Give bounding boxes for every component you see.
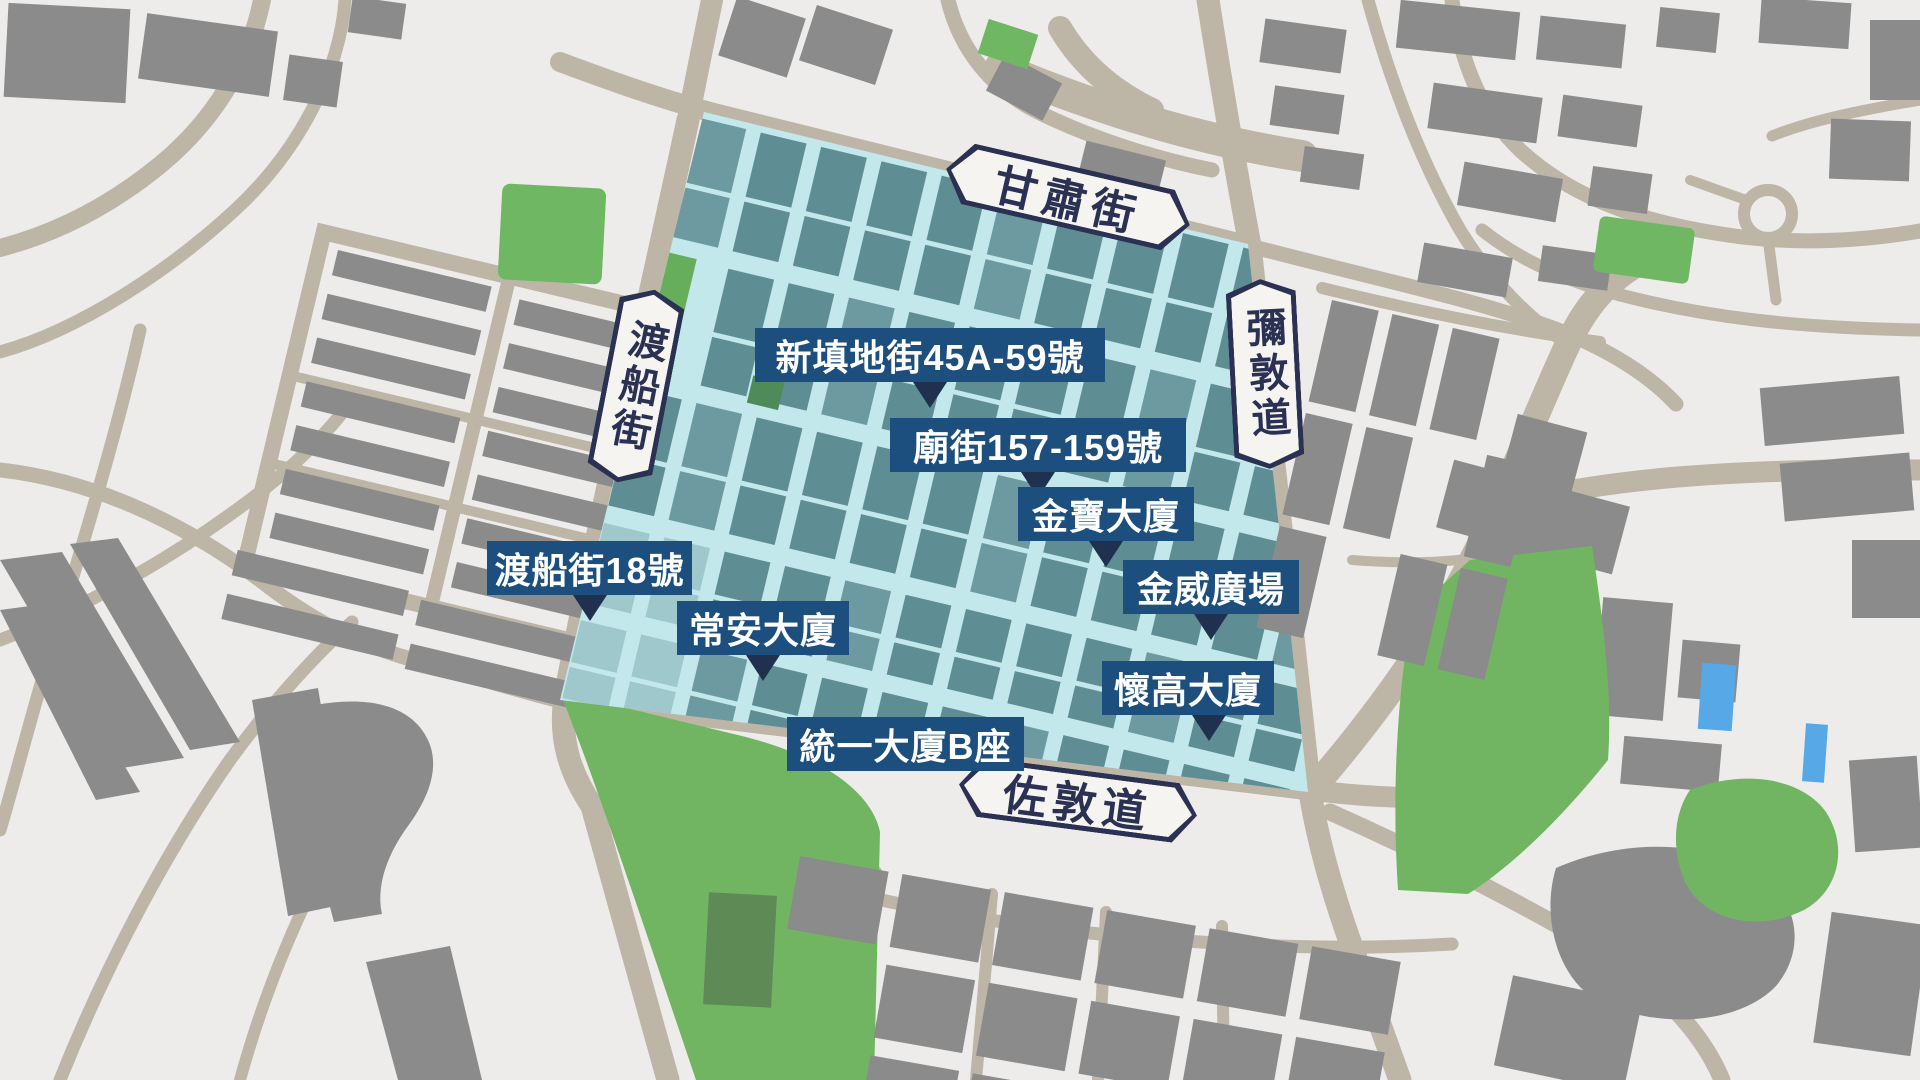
building-label-united-b: 統一大廈B座 — [787, 717, 1024, 771]
label-pointer — [913, 382, 947, 408]
street-sign-label: 彌敦道 — [1233, 305, 1298, 443]
building-label-text: 常安大廈 — [689, 602, 837, 654]
building-label-ferry-18: 渡船街18號 — [487, 541, 692, 595]
label-pointer — [1089, 541, 1123, 567]
building-label-reclamation-st: 新填地街45A-59號 — [755, 328, 1105, 382]
map-canvas: 甘肅街 渡船街 彌敦道 佐敦道 新填地街45A-59號 廟街157-159號 金… — [0, 0, 1920, 1080]
pool-water-2 — [1802, 723, 1828, 782]
building-label-text: 新填地街45A-59號 — [775, 329, 1084, 381]
building-label-text: 廟街157-159號 — [913, 419, 1163, 471]
sports-ground — [703, 892, 777, 1007]
label-pointer — [1194, 614, 1228, 640]
label-pointer — [746, 655, 780, 681]
building-label-kam-wai: 金威廣場 — [1123, 560, 1299, 614]
street-sign-nathan: 彌敦道 — [1225, 277, 1305, 470]
building-label-wai-ko: 懷高大廈 — [1102, 661, 1274, 715]
building-label-text: 統一大廈B座 — [800, 718, 1012, 770]
building-label-kam-po: 金寶大廈 — [1018, 487, 1194, 541]
building-label-temple-st: 廟街157-159號 — [890, 418, 1186, 472]
building-label-text: 金威廣場 — [1137, 561, 1285, 613]
building-label-text: 渡船街18號 — [494, 542, 684, 594]
building-label-text: 金寶大廈 — [1032, 488, 1180, 540]
pool-water — [1698, 663, 1737, 731]
label-pointer — [1192, 715, 1226, 741]
building-label-text: 懷高大廈 — [1114, 662, 1262, 714]
label-pointer — [573, 595, 607, 621]
building-label-sheung-on: 常安大廈 — [677, 601, 849, 655]
